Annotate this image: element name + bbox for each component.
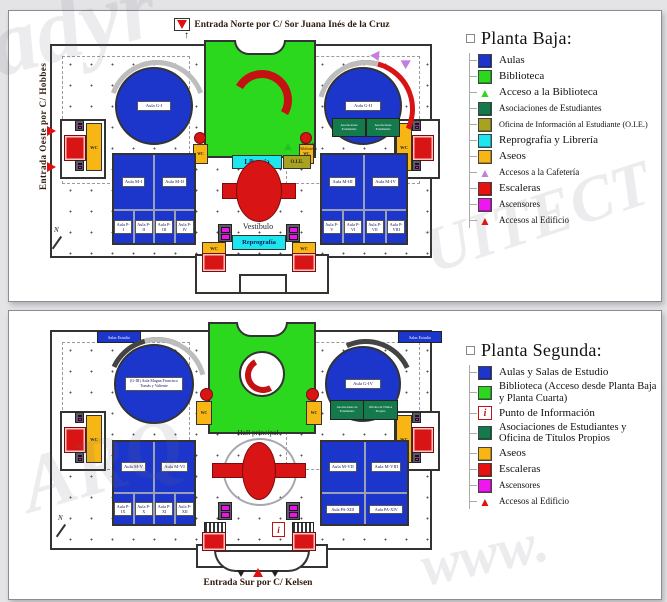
room-label: Aula M-II — [162, 177, 187, 187]
room-label: Aula P-IV — [176, 220, 194, 234]
room-aula-p9: Aula P-IX — [114, 494, 135, 524]
wc-small: WC — [306, 401, 322, 425]
stairs-central — [222, 160, 294, 220]
compass-n-label: N — [54, 226, 59, 234]
room-aula-p6: Aula P-VI — [344, 211, 366, 243]
room-label: Aula P-VI — [344, 220, 362, 234]
stairs-oval — [242, 442, 276, 500]
legend-title-row: Planta Baja: — [466, 28, 660, 49]
legend-planta-baja: Planta Baja: Aulas Biblioteca Acceso a l… — [466, 28, 660, 229]
page: adyr UITECT www. ARQ Entrada Norte por C… — [0, 0, 667, 602]
room-aula-p11: Aula P-XI — [155, 494, 176, 524]
room-label: Aula M-VI — [161, 462, 188, 472]
room-aula-m5: Aula M-V — [114, 442, 155, 492]
room-aula-m6: Aula M-VI — [155, 442, 194, 492]
room-aula-m7: Aula M-VII — [322, 442, 366, 492]
row-p: Aula P-V Aula P-VI Aula P-VII Aula P-VII… — [322, 211, 406, 243]
aulas-swatch — [478, 54, 492, 68]
aulas-swatch — [478, 366, 492, 380]
room-aula-pa13: Aula PA-XIII — [322, 494, 366, 524]
room-aula-p12: Aula P-XII — [176, 494, 195, 524]
floorplan-planta-segunda: WC WC Salas Estudio Salas Estudio (G-III… — [36, 316, 460, 600]
classroom-block-left: Aula M-V Aula M-VI Aula P-IX Aula P-X Au… — [112, 440, 196, 526]
elevator-west-2 — [75, 160, 84, 171]
entrance-marker-icon — [253, 568, 263, 577]
biblioteca-swatch — [478, 70, 492, 84]
arrow-down-icon — [271, 570, 279, 577]
legend-items: Aulas Biblioteca Acceso a la Biblioteca … — [469, 53, 660, 228]
room-label: Aula G-I — [137, 101, 171, 111]
compass: N — [54, 226, 59, 250]
legend-item-oie: Oficina de Información al Estudiante (O.… — [470, 117, 660, 132]
elevator-central-right — [286, 224, 300, 242]
room-aula-p3: Aula P-III — [155, 211, 176, 243]
room-aula-p1: Aula P-I — [114, 211, 135, 243]
stairs-round — [194, 132, 206, 144]
room-label: Aula P-I — [114, 220, 132, 234]
room-aula-m8: Aula M-VIII — [366, 442, 408, 492]
room-aula-m3: Aula M-III — [322, 155, 365, 209]
room-label: Aula M-V — [121, 462, 146, 472]
classroom-block-right: Aula M-VII Aula M-VIII Aula PA-XIII Aula… — [320, 440, 409, 526]
wc-west: WC — [86, 415, 102, 463]
reprografia: Reprografía — [232, 235, 286, 250]
stairs-round — [306, 388, 319, 401]
wc-small: WC — [196, 401, 212, 425]
entrance-west-marker-icon — [47, 162, 56, 172]
classroom-block-left: Aula M-I Aula M-II Aula P-I Aula P-II Au… — [112, 153, 196, 245]
legend-item-punto-informacion: Punto de Información — [470, 406, 660, 421]
oie-swatch — [478, 118, 492, 132]
room-label: Aula G-II — [345, 101, 381, 111]
curved-stairs-icon — [225, 63, 298, 136]
aseos-swatch — [478, 150, 492, 164]
stairs-oval — [236, 160, 282, 222]
elevator-central-left — [218, 224, 232, 242]
room-label: Aula P-VIII — [387, 220, 405, 234]
room-aula-p2: Aula P-II — [135, 211, 156, 243]
oficina-titulos-propios: Oficina de Títulos Propios — [363, 400, 398, 420]
info-point-icon: i — [272, 522, 285, 537]
hall-principal-label: Hall principal — [216, 428, 300, 437]
escaleras-swatch — [478, 463, 492, 477]
biblioteca-swatch — [478, 386, 492, 400]
room-label: Aula M-I — [122, 177, 145, 187]
legend-item-ascensores: Ascensores — [470, 197, 660, 212]
library-entrance-marker: Entrada Biblioteca — [284, 142, 323, 151]
row-pa: Aula PA-XIII Aula PA-XIV — [322, 494, 407, 524]
ascensores-swatch — [478, 479, 492, 493]
compass: N — [58, 514, 63, 538]
room-aula-p10: Aula P-X — [135, 494, 156, 524]
room-label: Aula P-II — [135, 220, 153, 234]
legend-item-aulas: Aulas — [470, 53, 660, 68]
entrance-canopy — [234, 40, 286, 55]
arrow-down-icon — [237, 570, 245, 577]
legend-item-escaleras: Escaleras — [470, 462, 660, 477]
library-access-icon — [284, 143, 292, 150]
legend-item-ascensores: Ascensores — [470, 478, 660, 493]
escaleras-swatch — [478, 182, 492, 196]
legend-item-biblioteca: Biblioteca — [470, 69, 660, 84]
room-aula-magna-g3: (G-III) Aula Magna Francisco Tomás y Val… — [114, 344, 194, 424]
elevator-east-2 — [412, 160, 421, 171]
stairs-south-right — [292, 532, 316, 551]
row-m: Aula M-VII Aula M-VIII — [322, 442, 407, 494]
curved-stairs-icon — [241, 353, 285, 397]
row-m: Aula M-V Aula M-VI — [114, 442, 194, 494]
legend-item-biblioteca: Biblioteca (Acceso desde Planta Baja y P… — [470, 381, 660, 405]
legend-item-accesos-edificio: Accesos al Edificio — [470, 494, 660, 509]
elevator-central-right — [286, 502, 300, 520]
room-label: Aula M-VII — [329, 462, 357, 472]
room-aula-pa14: Aula PA-XIV — [366, 494, 408, 524]
row-p: Aula P-I Aula P-II Aula P-III Aula P-IV — [114, 211, 194, 243]
legend-title-row: Planta Segunda: — [466, 340, 660, 361]
stairs-south-left — [202, 253, 226, 272]
row-m: Aula M-I Aula M-II — [114, 155, 194, 211]
aseos-swatch — [478, 447, 492, 461]
biblioteca-area — [204, 40, 316, 158]
legend-planta-segunda: Planta Segunda: Aulas y Salas de Estudio… — [466, 340, 660, 510]
legend-title: Planta Segunda: — [481, 340, 602, 361]
room-label: Aula P-III — [155, 220, 173, 234]
legend-item-accesos-edificio: Accesos al Edificio — [470, 213, 660, 228]
room-aula-p4: Aula P-IV — [176, 211, 195, 243]
stairs-west — [64, 135, 86, 161]
floorplan-planta-baja: Entrada Norte por C/ Sor Juana Inés de l… — [36, 14, 460, 304]
stairs-west — [64, 427, 86, 453]
room-label: Aula M-VIII — [371, 462, 401, 472]
asociaciones-estudiantes: Asociaciones Estudiantes — [332, 118, 366, 137]
entrance-west-marker-icon — [47, 126, 56, 136]
stairs-round — [200, 388, 213, 401]
legend-item-asociaciones: Asociaciones de Estudiantes — [470, 101, 660, 116]
asociaciones-estudiantes: Asociaciones de Estudiantes — [330, 400, 364, 420]
room-aula-g1: Aula G-I — [115, 67, 193, 145]
salas-estudio-tag: Salas Estudio — [398, 331, 442, 343]
library-access-icon — [478, 87, 492, 99]
elevator-west-1 — [75, 120, 84, 131]
row-m: Aula M-III Aula M-IV — [322, 155, 406, 211]
building-access-icon — [478, 496, 492, 508]
vestibulo-label: Vestíbulo — [222, 222, 294, 231]
asociaciones-swatch — [478, 102, 492, 116]
building-access-icon — [478, 215, 492, 227]
north-arrow-icon: ↑ — [184, 30, 189, 41]
south-porch — [239, 274, 287, 294]
room-label: Aula P-V — [323, 220, 341, 234]
legend-item-escaleras: Escaleras — [470, 181, 660, 196]
legend-item-asociaciones: Asociaciones de Estudiantes y Oficina de… — [470, 422, 660, 446]
legend-title: Planta Baja: — [481, 28, 572, 49]
cafeteria-access-icon — [478, 167, 492, 179]
tree-node-icon[interactable] — [466, 346, 475, 355]
room-label: Aula P-X — [135, 502, 153, 516]
compass-n-label: N — [58, 514, 63, 522]
room-label: Aula PA-XIII — [326, 505, 360, 514]
legend-item-reprografia: Reprografía y Librería — [470, 133, 660, 148]
entrance-north-text: Entrada Norte por C/ Sor Juana Inés de l… — [194, 20, 389, 30]
info-point-icon — [478, 406, 492, 420]
legend-item-aulas-salas: Aulas y Salas de Estudio — [470, 365, 660, 380]
room-label: Aula P-XII — [176, 502, 194, 516]
room-label: Aula P-IX — [114, 502, 132, 516]
room-label: (G-III) Aula Magna Francisco Tomás y Val… — [125, 377, 183, 391]
room-label: Aula G-IV — [345, 379, 381, 389]
legend-item-aseos: Aseos — [470, 446, 660, 461]
room-aula-m4: Aula M-IV — [365, 155, 406, 209]
room-aula-m1: Aula M-I — [114, 155, 155, 209]
wc-west: WC — [86, 123, 102, 171]
row-p: Aula P-IX Aula P-X Aula P-XI Aula P-XII — [114, 494, 194, 524]
entrance-south-text: Entrada Sur por C/ Kelsen — [204, 578, 313, 588]
classroom-block-right: Aula M-III Aula M-IV Aula P-V Aula P-VI … — [320, 153, 408, 245]
legend-items: Aulas y Salas de Estudio Biblioteca (Acc… — [469, 365, 660, 509]
legend-item-cafeteria: Accesos a la Cafetería — [470, 165, 660, 180]
asociaciones-swatch — [478, 426, 492, 440]
room-label: Aula PA-XIV — [369, 505, 403, 514]
legend-item-acceso-biblioteca: Acceso a la Biblioteca — [470, 85, 660, 100]
elevator-central-left — [218, 502, 232, 520]
stairs-east — [412, 427, 434, 453]
asociaciones-estudiantes: Asociaciones Estudiantes — [366, 118, 400, 137]
room-label: Aula P-VII — [366, 220, 384, 234]
elevator-east-2 — [412, 452, 421, 463]
entrance-south-label: Entrada Sur por C/ Kelsen — [158, 578, 358, 588]
tree-node-icon[interactable] — [466, 34, 475, 43]
biblioteca-area — [208, 322, 316, 434]
stairs-south-left — [202, 532, 226, 551]
stairs-south-right — [292, 253, 316, 272]
elevator-west-1 — [75, 412, 84, 423]
room-label: Aula M-IV — [372, 177, 399, 187]
elevator-east-1 — [412, 412, 421, 423]
room-aula-m2: Aula M-II — [155, 155, 194, 209]
room-label: Aula M-III — [329, 177, 355, 187]
room-label: Aula P-XI — [155, 502, 173, 516]
room-aula-p8: Aula P-VIII — [387, 211, 407, 243]
stairs-east — [412, 135, 434, 161]
elevator-west-2 — [75, 452, 84, 463]
room-aula-p5: Aula P-V — [322, 211, 344, 243]
entrance-south-markers — [218, 568, 298, 577]
library-entrance-text: Entrada Biblioteca — [293, 142, 323, 151]
entrance-canopy — [236, 322, 288, 337]
ascensores-swatch — [478, 198, 492, 212]
legend-item-aseos: Aseos — [470, 149, 660, 164]
room-aula-p7: Aula P-VII — [365, 211, 387, 243]
skylight — [239, 351, 285, 397]
reprografia-swatch — [478, 134, 492, 148]
